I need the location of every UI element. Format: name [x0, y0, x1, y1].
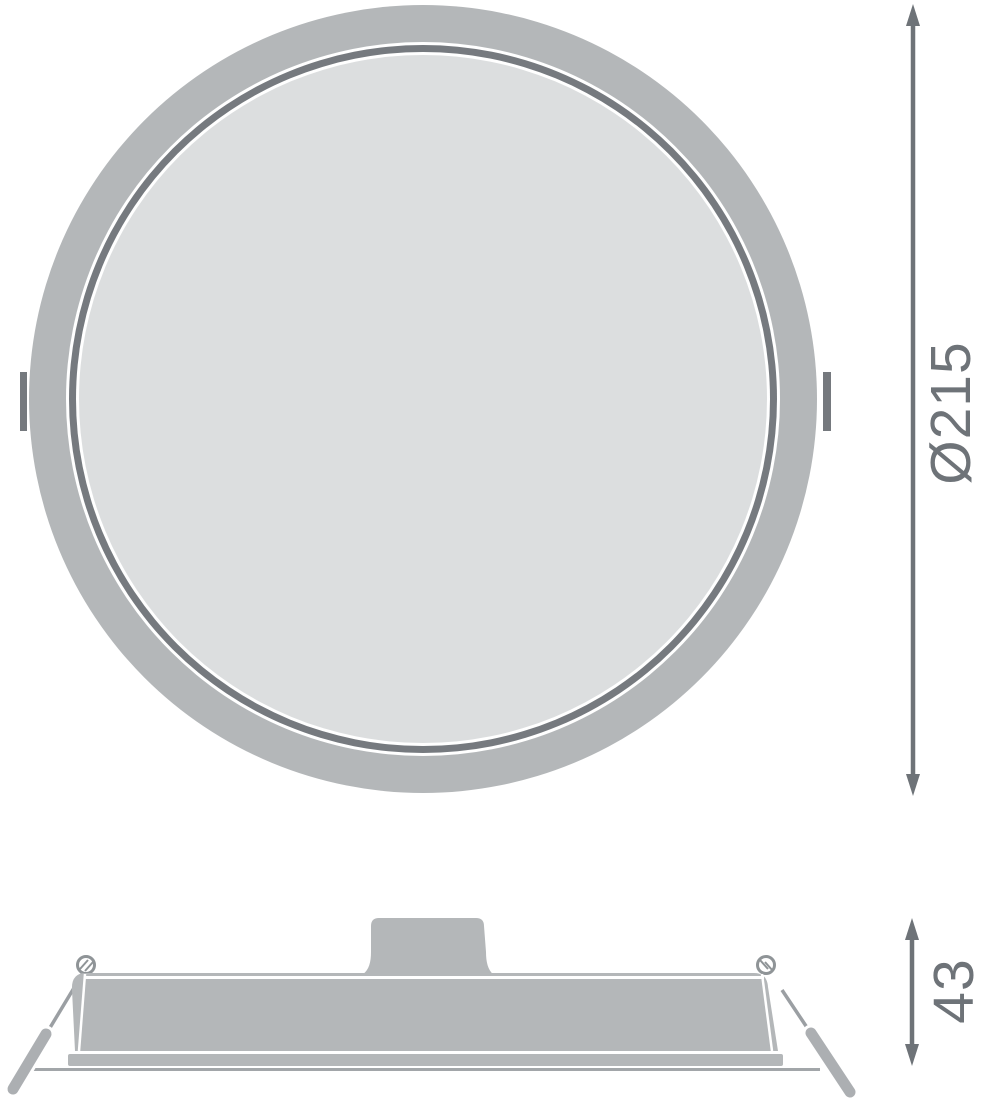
housing-body — [72, 973, 778, 1051]
side-view — [13, 918, 850, 1092]
right-spring-coil-icon — [758, 957, 775, 974]
arrow-up-icon — [905, 918, 919, 940]
downlight-dimension-drawing: Ø215 — [0, 0, 1000, 1101]
trim-flange — [68, 1054, 783, 1066]
left-spring-rod — [13, 1034, 46, 1089]
ceiling-line — [29, 1068, 820, 1071]
height-dimension-label: 43 — [922, 958, 986, 1023]
right-spring-rod — [811, 1033, 850, 1092]
diffuser-face — [79, 55, 767, 743]
technical-drawing-canvas: Ø215 — [0, 0, 1000, 1101]
front-view — [20, 5, 831, 793]
arrow-up-icon — [906, 4, 920, 26]
height-dimension: 43 — [905, 918, 986, 1066]
left-clip-tab — [20, 372, 27, 431]
arrow-down-icon — [906, 774, 920, 796]
driver-box — [363, 918, 493, 974]
diameter-dimension: Ø215 — [906, 4, 983, 796]
diameter-dimension-label: Ø215 — [919, 341, 983, 484]
left-spring-coil-icon — [78, 957, 95, 974]
right-clip-tab — [823, 372, 831, 431]
arrow-down-icon — [905, 1044, 919, 1066]
